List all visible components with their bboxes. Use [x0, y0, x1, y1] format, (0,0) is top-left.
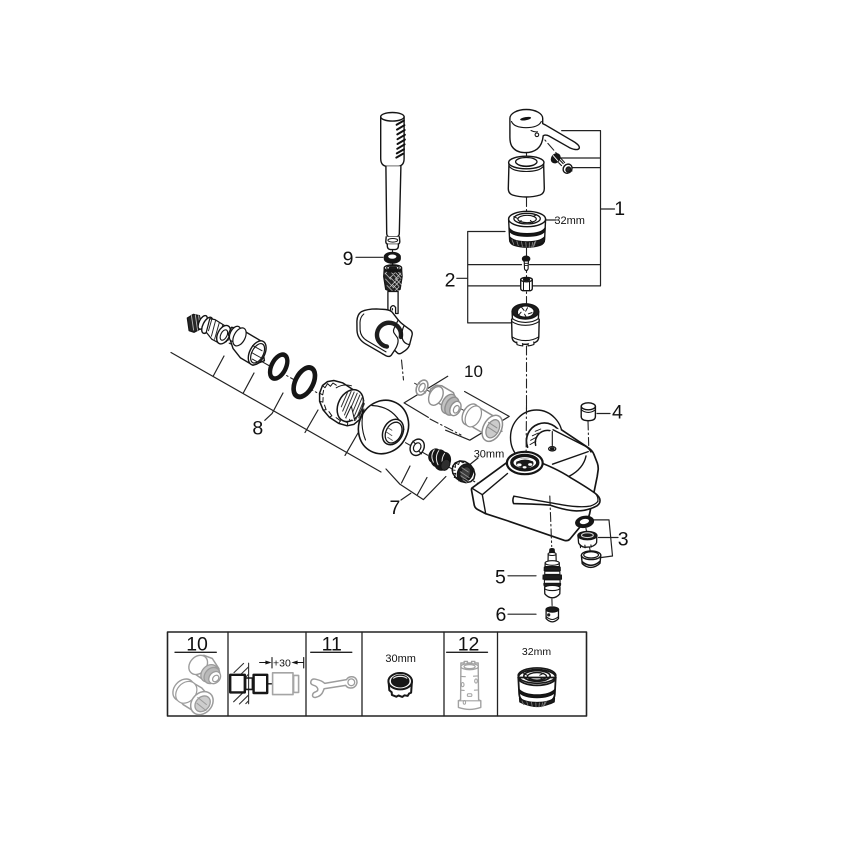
svg-text:8: 8 — [252, 417, 263, 439]
svg-text:1: 1 — [614, 198, 625, 220]
svg-text:9: 9 — [343, 248, 354, 270]
svg-text:6: 6 — [496, 604, 507, 626]
svg-text:2: 2 — [445, 270, 456, 292]
svg-text:3: 3 — [618, 529, 629, 551]
svg-text:5: 5 — [495, 567, 506, 589]
svg-text:30mm: 30mm — [385, 653, 416, 665]
svg-text:+30: +30 — [273, 658, 291, 670]
svg-text:10: 10 — [464, 362, 483, 381]
svg-text:32mm: 32mm — [522, 646, 551, 658]
svg-text:4: 4 — [612, 402, 623, 424]
svg-text:30mm: 30mm — [474, 448, 505, 460]
svg-text:7: 7 — [390, 497, 401, 519]
svg-text:32mm: 32mm — [554, 215, 585, 227]
